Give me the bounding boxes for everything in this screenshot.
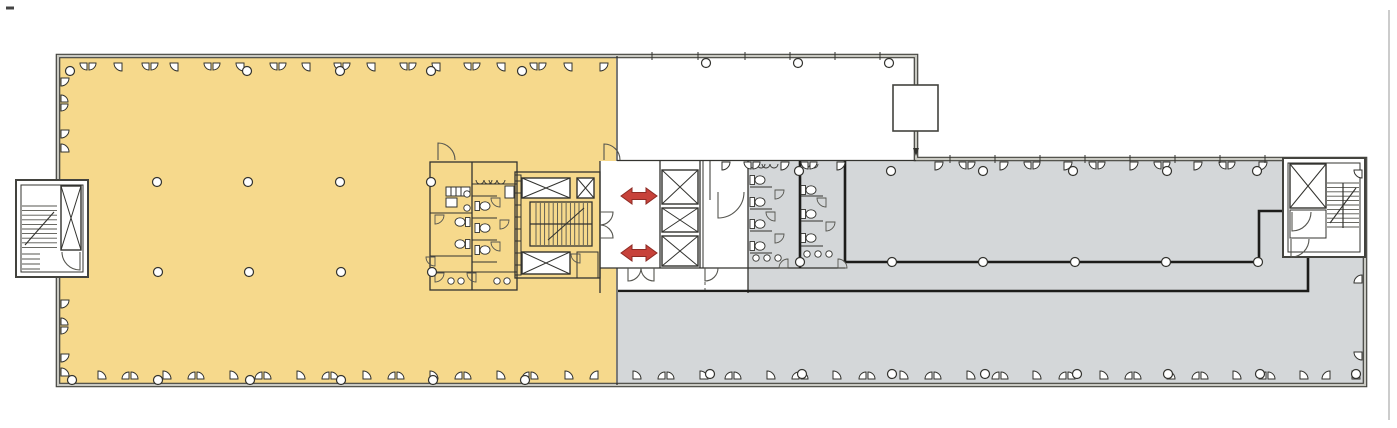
column-marker [795, 167, 804, 176]
sink-basin [504, 278, 510, 284]
door-arc [718, 192, 744, 218]
toilet-tank [475, 202, 480, 211]
toilet-tank [750, 220, 755, 229]
east-office-zone [618, 160, 1365, 385]
sink-basin [815, 251, 821, 257]
sink-basin [494, 278, 500, 284]
column-marker [429, 376, 438, 385]
window-arc [722, 162, 730, 170]
column-marker [1254, 258, 1263, 267]
column-marker [246, 376, 255, 385]
zone-fills [60, 58, 1365, 385]
column-marker [796, 258, 805, 267]
door-arc [628, 268, 641, 281]
column-marker [979, 167, 988, 176]
toilet-tank [466, 240, 471, 249]
sink-basin [464, 191, 470, 197]
toilet-bowl [455, 240, 465, 248]
sink-basin [775, 255, 781, 261]
column-marker [1162, 258, 1171, 267]
column-marker [1163, 167, 1172, 176]
column-marker [154, 268, 163, 277]
column-marker [243, 67, 252, 76]
toilet-bowl [480, 202, 490, 210]
sink-basin [764, 255, 770, 261]
sink-basin [464, 205, 470, 211]
column-marker [887, 167, 896, 176]
column-marker [518, 67, 527, 76]
sink-basin [804, 251, 810, 257]
toilet-tank [801, 234, 806, 243]
column-marker [885, 59, 894, 68]
column-marker [1069, 167, 1078, 176]
sink-basin [826, 251, 832, 257]
column-marker [68, 376, 77, 385]
toilet-bowl [480, 224, 490, 232]
column-marker [706, 370, 715, 379]
column-marker [427, 178, 436, 187]
column-marker [1253, 167, 1262, 176]
column-marker [428, 268, 437, 277]
column-marker [1256, 370, 1265, 379]
column-marker [979, 258, 988, 267]
column-marker [521, 376, 530, 385]
column-marker [154, 376, 163, 385]
door-arc [641, 268, 654, 281]
west-office-zone [60, 58, 616, 384]
column-marker [702, 59, 711, 68]
column-marker [798, 370, 807, 379]
toilet-bowl [455, 218, 465, 226]
column-marker [337, 376, 346, 385]
toilet-tank [750, 176, 755, 185]
toilet-bowl [806, 234, 816, 242]
column-marker [336, 178, 345, 187]
column-marker [1352, 370, 1361, 379]
toilet-bowl [806, 210, 816, 218]
sink-basin [458, 278, 464, 284]
column-marker [427, 67, 436, 76]
column-marker [337, 268, 346, 277]
column-marker [981, 370, 990, 379]
toilet-bowl [755, 220, 765, 228]
column-marker [1071, 258, 1080, 267]
toilet-tank [801, 210, 806, 219]
toilet-bowl [755, 176, 765, 184]
column-marker [66, 67, 75, 76]
column-marker [244, 178, 253, 187]
column-marker [245, 268, 254, 277]
column-marker [1073, 370, 1082, 379]
toilet-bowl [755, 198, 765, 206]
column-marker [336, 67, 345, 76]
toilet-bowl [480, 246, 490, 254]
window-arc [744, 162, 751, 169]
toilet-tank [466, 218, 471, 227]
column-marker [888, 370, 897, 379]
toilet-bowl [755, 242, 765, 250]
column-marker [794, 59, 803, 68]
floor-plan-page [0, 0, 1397, 428]
floor-plan-drawing [0, 0, 1397, 428]
column-marker [1164, 370, 1173, 379]
toilet-bowl [806, 186, 816, 194]
toilet-tank [475, 246, 480, 255]
door-arc [705, 268, 718, 281]
wall-ticks-layer [652, 52, 1265, 163]
toilet-tank [750, 242, 755, 251]
toilet-tank [475, 224, 480, 233]
toilet-tank [750, 198, 755, 207]
sink-basin [448, 278, 454, 284]
exterior-annex-box [893, 85, 938, 131]
column-marker [888, 258, 897, 267]
toilet-tank [801, 186, 806, 195]
sink-basin [753, 255, 759, 261]
column-marker [153, 178, 162, 187]
